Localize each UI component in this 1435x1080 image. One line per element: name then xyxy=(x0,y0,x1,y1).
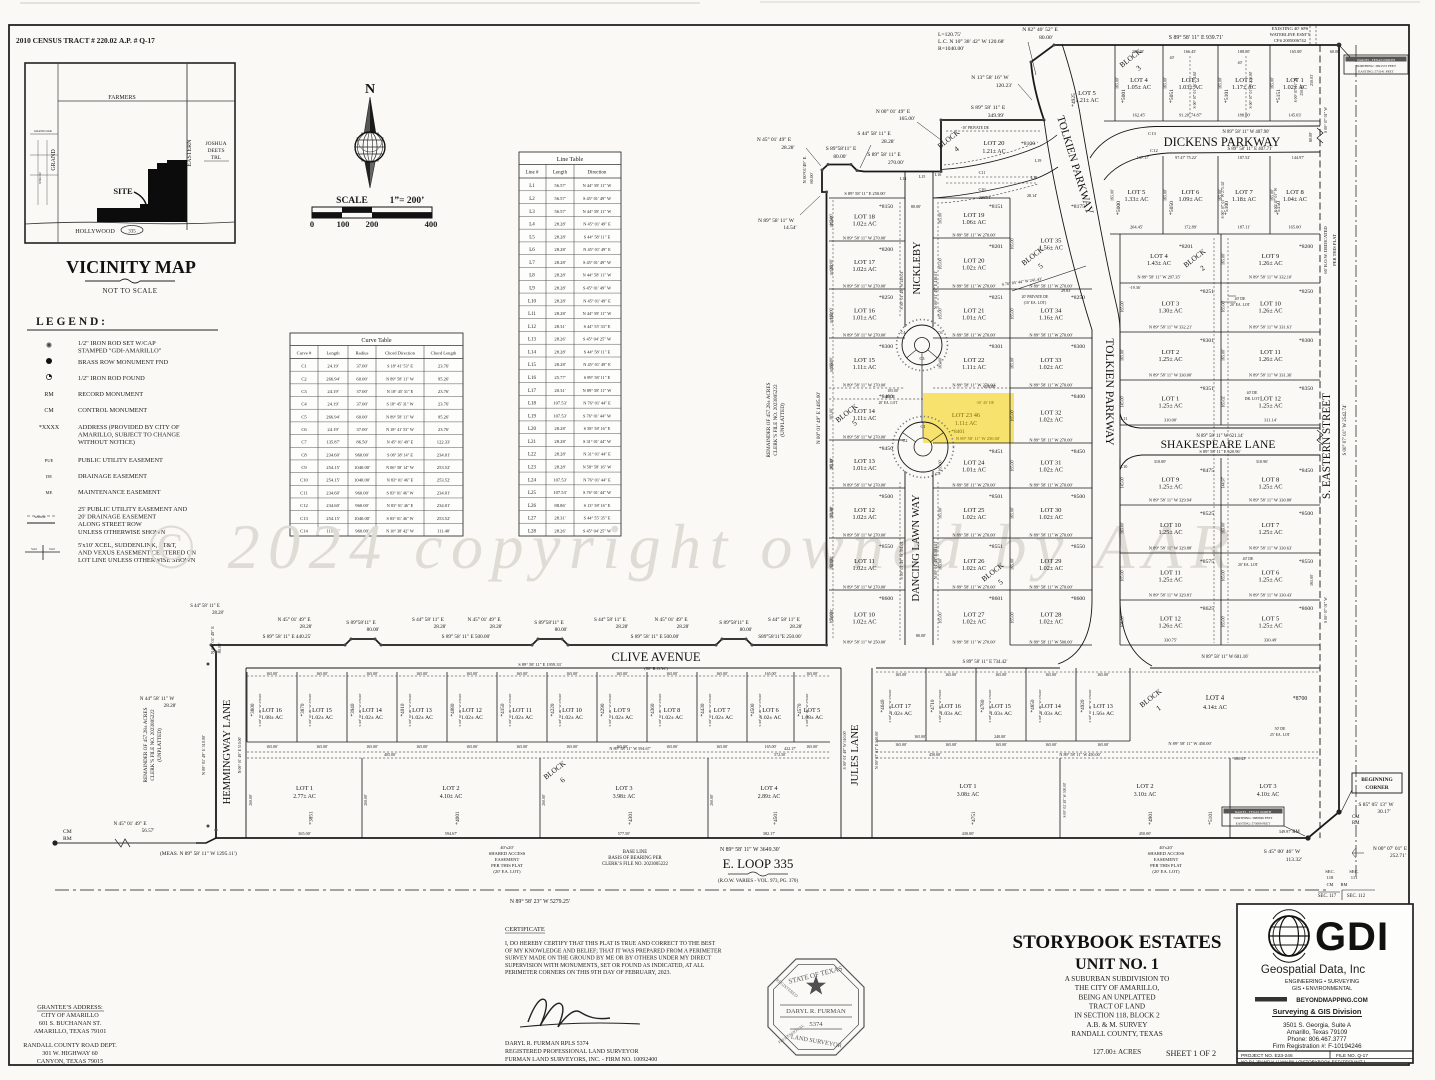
svg-text:NAD 83 - TEXAS NORTH: NAD 83 - TEXAS NORTH xyxy=(1357,58,1395,62)
svg-text:L3: L3 xyxy=(529,210,535,215)
svg-text:80.00′: 80.00′ xyxy=(1308,132,1313,142)
svg-text:L10: L10 xyxy=(1121,464,1128,469)
svg-text:LOT 26: LOT 26 xyxy=(964,558,986,565)
svg-text:Geospatial Data, Inc: Geospatial Data, Inc xyxy=(1261,964,1365,976)
svg-text:28.28': 28.28' xyxy=(554,234,565,239)
svg-text:C1: C1 xyxy=(921,424,926,429)
svg-text:165.00′: 165.00′ xyxy=(1010,357,1015,369)
svg-text:S 00° 01′ 49″ W 270.00′: S 00° 01′ 49″ W 270.00′ xyxy=(758,693,762,726)
svg-text:*4150: *4150 xyxy=(500,703,506,716)
svg-text:*8451: *8451 xyxy=(989,449,1003,455)
svg-text:25.77': 25.77' xyxy=(554,375,565,380)
svg-text:LOT 4: LOT 4 xyxy=(1206,695,1225,702)
svg-text:165.00′: 165.00′ xyxy=(765,744,777,749)
svg-text:28.26': 28.26' xyxy=(554,337,565,342)
svg-text:TRL: TRL xyxy=(211,155,222,161)
svg-text:1.25± AC: 1.25± AC xyxy=(1158,529,1182,536)
svg-text:LOT 9: LOT 9 xyxy=(1162,477,1180,484)
svg-text:165.00′: 165.00′ xyxy=(1221,615,1226,627)
svg-text:LOT 12: LOT 12 xyxy=(854,507,875,514)
svg-text:L19: L19 xyxy=(1035,158,1042,163)
svg-text:N 89° 58′ 11″ W 270.00′: N 89° 58′ 11″ W 270.00′ xyxy=(952,585,995,590)
svg-text:WITHOUT NOTICE): WITHOUT NOTICE) xyxy=(78,439,135,446)
svg-text:40′ DE: 40′ DE xyxy=(1247,391,1258,395)
svg-text:N 82° 40′ 52″ E: N 82° 40′ 52″ E xyxy=(1022,26,1058,33)
svg-text:60.00′: 60.00′ xyxy=(1330,49,1340,54)
svg-text:EASEMENT: EASEMENT xyxy=(1154,857,1179,862)
svg-text:28.28′: 28.28′ xyxy=(790,624,803,630)
svg-text:LOT 5: LOT 5 xyxy=(1078,90,1096,97)
svg-text:CERTIFICATE: CERTIFICATE xyxy=(505,926,545,933)
svg-text:*5000: *5000 xyxy=(1116,201,1122,215)
svg-text:382.17′: 382.17′ xyxy=(763,831,776,836)
svg-text:165.00′: 165.00′ xyxy=(830,556,834,567)
svg-text:WATERLINE ESM’T: WATERLINE ESM’T xyxy=(1270,32,1311,37)
svg-text:1.05± AC: 1.05± AC xyxy=(1127,84,1151,91)
svg-text:OF MY KNOWLEDGE AND BELIEF; TH: OF MY KNOWLEDGE AND BELIEF; THAT IT WAS … xyxy=(505,948,722,954)
svg-text:NAD 83 - TEXAS NORTH: NAD 83 - TEXAS NORTH xyxy=(1235,810,1272,814)
svg-text:165.00′: 165.00′ xyxy=(516,744,528,749)
svg-text:N 89° 58′ 11″ W 270.00′: N 89° 58′ 11″ W 270.00′ xyxy=(1029,438,1072,443)
svg-text:*8150: *8150 xyxy=(879,204,893,210)
svg-text:RM: RM xyxy=(1341,882,1348,887)
svg-text:N 31° 01' 44" E: N 31° 01' 44" E xyxy=(583,452,611,457)
svg-text:960.00': 960.00' xyxy=(355,503,369,508)
svg-text:BRASS ROW MONUMENT FND: BRASS ROW MONUMENT FND xyxy=(78,359,169,366)
svg-text:Chord Length: Chord Length xyxy=(431,351,457,356)
svg-text:S. EASTERN STREET: S. EASTERN STREET xyxy=(1321,393,1333,499)
svg-text:N 45° 01′ 49″ E: N 45° 01′ 49″ E xyxy=(113,820,146,827)
svg-text:L20: L20 xyxy=(528,427,537,432)
svg-text:N 00° 01′ 49″ E 416.01′: N 00° 01′ 49″ E 416.01′ xyxy=(933,271,938,309)
svg-text:60′ R.O.W. DEDICATED: 60′ R.O.W. DEDICATED xyxy=(1323,226,1328,274)
svg-text:RANDALL COUNTY ROAD DEPT.: RANDALL COUNTY ROAD DEPT. xyxy=(23,1042,117,1049)
svg-text:N 76° 01' 44" E: N 76° 01' 44" E xyxy=(583,401,611,406)
svg-text:28.28': 28.28' xyxy=(554,273,565,278)
svg-text:4.10± AC: 4.10± AC xyxy=(440,794,463,800)
svg-text:Line Table: Line Table xyxy=(557,156,584,163)
svg-text:*5051: *5051 xyxy=(1169,89,1175,103)
svg-text:N 89° 58′ 11″ W 270.00′: N 89° 58′ 11″ W 270.00′ xyxy=(843,383,886,388)
svg-text:165.00′: 165.00′ xyxy=(938,611,943,623)
svg-text:Length: Length xyxy=(326,351,340,356)
svg-text:28.28': 28.28' xyxy=(554,452,565,457)
svg-text:N 45° 01' 49" E: N 45° 01' 49" E xyxy=(387,440,414,445)
svg-text:LOT 10: LOT 10 xyxy=(1160,522,1182,529)
svg-text:L25: L25 xyxy=(528,491,537,496)
svg-text:40′ DE: 40′ DE xyxy=(1235,297,1246,301)
svg-text:*8550: *8550 xyxy=(879,544,893,550)
svg-text:SEC.: SEC. xyxy=(1349,869,1359,874)
svg-text:253.52': 253.52' xyxy=(437,478,451,483)
svg-text:28.28': 28.28' xyxy=(554,247,565,252)
svg-text:LOT 6: LOT 6 xyxy=(1182,189,1200,196)
svg-text:1.08± AC: 1.08± AC xyxy=(261,715,283,721)
svg-text:28.28': 28.28' xyxy=(554,285,565,290)
svg-text:ALONG STREET ROW: ALONG STREET ROW xyxy=(78,521,143,528)
svg-text:N 89° 58′ 11″ W 329.88′: N 89° 58′ 11″ W 329.88′ xyxy=(1149,546,1192,551)
svg-text:LOT 7: LOT 7 xyxy=(1235,189,1253,196)
svg-text:165.00′: 165.00′ xyxy=(914,734,926,739)
svg-text:S 89° 58′ 11″ E 500.00′: S 89° 58′ 11″ E 500.00′ xyxy=(442,633,491,640)
svg-text:LOT 31: LOT 31 xyxy=(1041,460,1062,467)
svg-text:80.00′: 80.00′ xyxy=(555,627,568,633)
svg-text:234.60': 234.60' xyxy=(326,503,340,508)
svg-text:NICKLEBY: NICKLEBY xyxy=(912,241,923,294)
svg-text:ENGINEERING • SURVEYING: ENGINEERING • SURVEYING xyxy=(1285,979,1359,985)
svg-text:430.00′: 430.00′ xyxy=(962,831,975,836)
svg-text:N 00° 01′ 49″ E 510.00′: N 00° 01′ 49″ E 510.00′ xyxy=(201,735,206,775)
svg-text:S 00° 01′ 49″ W 270.00′: S 00° 01′ 49″ W 270.00′ xyxy=(1088,689,1092,722)
svg-text:LOT 13: LOT 13 xyxy=(854,458,876,465)
svg-text:165.00′: 165.00′ xyxy=(366,671,378,676)
svg-text:C10: C10 xyxy=(979,187,986,192)
svg-text:DRAINAGE EASEMENT: DRAINAGE EASEMENT xyxy=(78,473,147,480)
svg-text:1.26± AC: 1.26± AC xyxy=(1158,623,1182,630)
svg-text:BEGINNING: BEGINNING xyxy=(1361,777,1393,783)
svg-text:37.00': 37.00' xyxy=(356,427,367,432)
svg-text:1.02± AC: 1.02± AC xyxy=(852,565,876,572)
svg-text:100: 100 xyxy=(337,219,350,229)
svg-text:188.00′: 188.00′ xyxy=(1237,113,1250,118)
svg-text:*8250: *8250 xyxy=(1071,295,1085,301)
svg-text:*4901: *4901 xyxy=(1148,811,1154,825)
svg-text:111: 111 xyxy=(1351,875,1358,880)
svg-text:(UNPLATTED): (UNPLATTED) xyxy=(156,728,163,762)
svg-text:28.28': 28.28' xyxy=(554,349,565,354)
svg-text:*XXXX: *XXXX xyxy=(39,425,60,431)
svg-text:1.25± AC: 1.25± AC xyxy=(1158,356,1182,363)
svg-text:(20′ EA. LOT): (20′ EA. LOT) xyxy=(1152,869,1180,874)
svg-text:C1: C1 xyxy=(301,364,307,369)
svg-text:S 13° 58' 16" E: S 13° 58' 16" E xyxy=(584,503,611,508)
svg-text:L26: L26 xyxy=(528,504,537,509)
svg-text:28.28': 28.28' xyxy=(554,222,565,227)
svg-text:N 89° 58′ 11″ W 297.35′: N 89° 58′ 11″ W 297.35′ xyxy=(1137,275,1180,280)
svg-text:AMARILLO, SUBJECT TO CHANGE: AMARILLO, SUBJECT TO CHANGE xyxy=(78,432,180,439)
svg-text:1.09± AC: 1.09± AC xyxy=(1178,196,1202,203)
svg-text:165.00′: 165.00′ xyxy=(666,744,678,749)
svg-text:1.02± AC: 1.02± AC xyxy=(852,221,876,228)
svg-text:N 00° 07′ 01″ E 510.00′: N 00° 07′ 01″ E 510.00′ xyxy=(874,731,879,769)
svg-text:4.14± AC: 4.14± AC xyxy=(1203,704,1227,711)
svg-text:37.00': 37.00' xyxy=(356,389,367,394)
svg-text:CM: CM xyxy=(1327,882,1334,887)
svg-text:Firm Registration #: F-1019424: Firm Registration #: F-10194246 xyxy=(1272,1043,1362,1050)
svg-text:wwww: wwww xyxy=(34,514,46,519)
svg-text:N 45° 01' 49" E: N 45° 01' 49" E xyxy=(583,362,611,367)
svg-text:250.03′: 250.03′ xyxy=(1309,74,1314,86)
svg-text:S 00° 07′ 01″ W 270.00′: S 00° 07′ 01″ W 270.00′ xyxy=(1249,71,1253,108)
svg-text:N 89° 58′ 11″ W 270.00′: N 89° 58′ 11″ W 270.00′ xyxy=(1029,533,1072,538)
svg-text:1.02± AC: 1.02± AC xyxy=(1039,467,1063,474)
svg-text:TRACT OF LAND: TRACT OF LAND xyxy=(1089,1002,1145,1010)
svg-text:HEMMINGWAY LANE: HEMMINGWAY LANE xyxy=(222,700,233,805)
svg-text:LOT 4: LOT 4 xyxy=(1130,77,1148,84)
svg-text:165.00′: 165.00′ xyxy=(516,671,528,676)
svg-text:28.28': 28.28' xyxy=(554,298,565,303)
svg-text:*5101: *5101 xyxy=(1224,89,1230,103)
svg-text:N 18° 45' 31" E: N 18° 45' 31" E xyxy=(387,389,414,394)
svg-text:1.06± AC: 1.06± AC xyxy=(962,219,986,226)
svg-text:20′ PRIVATE DE: 20′ PRIVATE DE xyxy=(1022,295,1049,299)
svg-text:*8575: *8575 xyxy=(1200,559,1214,565)
svg-text:S 06° 38' 14" E: S 06° 38' 14" E xyxy=(387,452,413,457)
svg-text:165.00′: 165.00′ xyxy=(566,671,578,676)
svg-text:80.00′: 80.00′ xyxy=(740,627,753,633)
svg-text:91.20′ 74.87′: 91.20′ 74.87′ xyxy=(1179,113,1202,118)
svg-text:165.00′: 165.00′ xyxy=(316,671,328,676)
svg-text:28.28′: 28.28′ xyxy=(434,624,447,630)
svg-text:N 89° 58′ 11″ W 270.00′: N 89° 58′ 11″ W 270.00′ xyxy=(952,333,995,338)
svg-text:N 00° 01′ 49″ E 1485.00′: N 00° 01′ 49″ E 1485.00′ xyxy=(815,392,822,444)
svg-text:311.14′: 311.14′ xyxy=(1264,418,1277,423)
svg-text:LOT 8: LOT 8 xyxy=(1262,477,1280,484)
svg-text:S 00° 01′ 49″ W 270.00′: S 00° 01′ 49″ W 270.00′ xyxy=(988,689,992,722)
svg-text:Phone: 806.467.3777: Phone: 806.467.3777 xyxy=(1287,1036,1347,1043)
svg-text:40′x20′: 40′x20′ xyxy=(1159,845,1173,850)
svg-text:S 18° 45' 31" W: S 18° 45' 31" W xyxy=(386,402,413,407)
svg-text:*5001: *5001 xyxy=(1121,89,1127,103)
svg-text:(MEAS. N 89° 58′ 11″ W 1295.11: (MEAS. N 89° 58′ 11″ W 1295.11′) xyxy=(160,850,237,857)
svg-text:S 00° 01′ 49″ W 270.00′: S 00° 01′ 49″ W 270.00′ xyxy=(558,693,562,726)
svg-text:CORNER: CORNER xyxy=(1365,785,1388,791)
svg-text:1.02± AC: 1.02± AC xyxy=(511,715,533,721)
svg-text:S 89°58′11″ E: S 89°58′11″ E xyxy=(346,619,375,626)
svg-text:N 00° 01′ 49″ E: N 00° 01′ 49″ E xyxy=(210,626,215,654)
svg-text:RM: RM xyxy=(63,836,72,842)
svg-text:N 89° 58′ 11″ W 621.14′: N 89° 58′ 11″ W 621.14′ xyxy=(1196,434,1243,439)
svg-text:14.54′: 14.54′ xyxy=(783,225,796,231)
svg-text:LOT 4: LOT 4 xyxy=(1150,253,1168,260)
svg-text:S 44° 58′ 11″ E: S 44° 58′ 11″ E xyxy=(768,616,800,623)
svg-text:234.01': 234.01' xyxy=(437,452,451,457)
svg-text:PROJECT NO. E23-246: PROJECT NO. E23-246 xyxy=(1241,1053,1293,1059)
svg-text:80.00′: 80.00′ xyxy=(1039,35,1053,41)
svg-text:120.23′: 120.23′ xyxy=(996,83,1013,89)
svg-text:LOT 33: LOT 33 xyxy=(1041,357,1063,364)
svg-text:*3940: *3940 xyxy=(350,703,356,716)
svg-text:80.00′: 80.00′ xyxy=(833,154,846,160)
svg-text:C3: C3 xyxy=(301,389,307,394)
svg-text:165.00′: 165.00′ xyxy=(1163,189,1168,201)
svg-text:C11: C11 xyxy=(300,490,308,495)
svg-text:1040.00': 1040.00' xyxy=(354,465,370,470)
svg-text:2.89± AC: 2.89± AC xyxy=(758,794,781,800)
svg-text:LOT 12: LOT 12 xyxy=(1260,396,1281,403)
svg-text:S 00° 07′ 01″ W: S 00° 07′ 01″ W xyxy=(1323,107,1328,133)
svg-text:N 89° 58′ 11″ W 270.00′: N 89° 58′ 11″ W 270.00′ xyxy=(1029,383,1072,388)
svg-text:252.71′: 252.71′ xyxy=(1390,853,1406,859)
svg-text:1.02± AC: 1.02± AC xyxy=(461,715,483,721)
svg-text:L6: L6 xyxy=(529,248,535,253)
svg-text:N 45° 01' 49" E: N 45° 01' 49" E xyxy=(583,222,611,227)
svg-text:RANDALL COUNTY, TEXAS: RANDALL COUNTY, TEXAS xyxy=(1071,1030,1163,1038)
svg-text:Line #: Line # xyxy=(526,171,539,176)
svg-text:*4925: *4925 xyxy=(1071,93,1077,107)
svg-text:S 89° 58' 11" E: S 89° 58' 11" E xyxy=(584,375,611,380)
svg-text:N 00°01′49″ E: N 00°01′49″ E xyxy=(802,156,807,183)
svg-text:S 45° 04' 25" W: S 45° 04' 25" W xyxy=(583,337,612,342)
svg-text:N 06° 58' 14" W: N 06° 58' 14" W xyxy=(386,465,414,470)
svg-text:165.00′: 165.00′ xyxy=(899,116,915,122)
svg-text:20' DRAINAGE EASEMENT: 20' DRAINAGE EASEMENT xyxy=(78,514,156,521)
svg-text:*8450: *8450 xyxy=(1071,449,1085,455)
svg-text:1: 1 xyxy=(1154,703,1163,713)
svg-text:N 44° 58′ 11″ W: N 44° 58′ 11″ W xyxy=(140,695,175,702)
svg-text:*8475: *8475 xyxy=(1200,468,1214,474)
svg-text:HOLLYWOOD: HOLLYWOOD xyxy=(75,228,115,235)
svg-text:165.00′: 165.00′ xyxy=(616,671,628,676)
svg-text:BEING AN UNPLATTED: BEING AN UNPLATTED xyxy=(1078,993,1155,1001)
svg-text:SUPERVISION WITH MONUMENTS, SE: SUPERVISION WITH MONUMENTS, SET OR FOUND… xyxy=(505,963,705,969)
svg-text:N 89° 58′ 11″ W 329.81′: N 89° 58′ 11″ W 329.81′ xyxy=(1149,593,1192,598)
svg-text:-19.36′: -19.36′ xyxy=(1129,285,1140,290)
svg-text:LOT 2: LOT 2 xyxy=(1162,349,1180,356)
svg-text:1.25± AC: 1.25± AC xyxy=(1258,484,1282,491)
svg-text:80.00′: 80.00′ xyxy=(217,643,222,654)
svg-text:N 44° 58' 11" W: N 44° 58' 11" W xyxy=(583,183,613,188)
svg-text:C3: C3 xyxy=(920,356,925,361)
svg-text:L1: L1 xyxy=(529,184,535,189)
svg-text:EASTERN: EASTERN xyxy=(187,139,193,167)
svg-text:REMAINDER OF 457.28± ACRES: REMAINDER OF 457.28± ACRES xyxy=(143,707,149,782)
svg-text:*3851: *3851 xyxy=(309,811,315,825)
svg-text:*8301: *8301 xyxy=(989,344,1003,350)
svg-text:S 00° 01′ 49″ W 270.00′: S 00° 01′ 49″ W 270.00′ xyxy=(658,693,662,726)
svg-text:S 58° 58' 16" E: S 58° 58' 16" E xyxy=(584,426,611,431)
svg-text:N 45° 01' 49" E: N 45° 01' 49" E xyxy=(583,298,611,303)
svg-text:EASTING: 573009 FEET: EASTING: 573009 FEET xyxy=(1236,822,1270,826)
svg-text:165.00′: 165.00′ xyxy=(938,307,943,319)
svg-text:N 89° 58′ 11″ W 332.10′: N 89° 58′ 11″ W 332.10′ xyxy=(1249,275,1292,280)
svg-text:LOT 4: LOT 4 xyxy=(760,785,778,792)
svg-text:28.28': 28.28' xyxy=(554,311,565,316)
svg-text:LOT 30: LOT 30 xyxy=(1041,507,1063,514)
svg-text:80.00′: 80.00′ xyxy=(916,633,926,638)
svg-text:144.97′: 144.97′ xyxy=(1221,476,1226,488)
svg-text:EASTING: 573141 FEET: EASTING: 573141 FEET xyxy=(1358,70,1394,74)
svg-text:S 00° 01′ 49″ W 270.00′: S 00° 01′ 49″ W 270.00′ xyxy=(308,693,312,726)
svg-text:165.00′: 165.00′ xyxy=(1010,558,1015,570)
svg-text:234.01': 234.01' xyxy=(437,490,451,495)
svg-text:N 89° 58′ 11″ W 270.00′: N 89° 58′ 11″ W 270.00′ xyxy=(952,483,995,488)
svg-text:BLOCK: BLOCK xyxy=(1138,686,1164,709)
svg-text:LOT 12: LOT 12 xyxy=(1160,616,1181,623)
svg-text:24.19': 24.19' xyxy=(327,389,338,394)
svg-text:3: 3 xyxy=(1134,63,1143,73)
svg-text:165.00′: 165.00′ xyxy=(938,212,943,224)
svg-text:330.75′: 330.75′ xyxy=(1164,638,1177,643)
svg-text:N 00° 01′ 49″ E 510.00′: N 00° 01′ 49″ E 510.00′ xyxy=(238,737,242,774)
svg-text:LOT 17: LOT 17 xyxy=(854,259,876,266)
svg-text:40′: 40′ xyxy=(1170,56,1175,60)
svg-text:254.15': 254.15' xyxy=(326,478,340,483)
svg-text:DR. LOT: DR. LOT xyxy=(1245,397,1260,401)
svg-text:L15: L15 xyxy=(528,363,537,368)
svg-text:1.03± AC: 1.03± AC xyxy=(1040,711,1062,717)
svg-text:2: 2 xyxy=(1198,263,1207,273)
svg-text:L E G E N D :: L E G E N D : xyxy=(36,316,105,328)
svg-text:165.00′: 165.00′ xyxy=(1110,189,1115,201)
svg-text:165.00′: 165.00′ xyxy=(830,458,834,469)
svg-text:960.00': 960.00' xyxy=(355,452,369,457)
svg-text:*8450: *8450 xyxy=(1299,468,1313,474)
svg-text:N 45° 01' 49" E: N 45° 01' 49" E xyxy=(583,247,611,252)
svg-text:*4640: *4640 xyxy=(880,699,886,712)
svg-text:S 00° 01′ 49″ W 270.00′: S 00° 01′ 49″ W 270.00′ xyxy=(805,693,809,726)
svg-text:187.11′: 187.11′ xyxy=(1238,225,1251,230)
svg-text:S 89°58′11″ E: S 89°58′11″ E xyxy=(534,619,563,626)
svg-text:AMARILLO, TEXAS 79101: AMARILLO, TEXAS 79101 xyxy=(34,1028,107,1035)
svg-text:601 S. BUCHANAN ST.: 601 S. BUCHANAN ST. xyxy=(39,1020,102,1027)
svg-text:Length: Length xyxy=(553,171,568,176)
svg-text:1.03± AC: 1.03± AC xyxy=(940,711,962,717)
svg-text:310.00′: 310.00′ xyxy=(1164,418,1177,423)
svg-text:Chord Direction: Chord Direction xyxy=(385,351,416,356)
svg-text:165.00′: 165.00′ xyxy=(995,672,1007,677)
svg-text:*8251: *8251 xyxy=(1200,289,1214,295)
svg-text:S 89° 58′ 11″ E: S 89° 58′ 11″ E xyxy=(971,104,1006,111)
svg-text:165.00′: 165.00′ xyxy=(466,744,478,749)
svg-text:254.15': 254.15' xyxy=(326,465,340,470)
svg-text:*4010: *4010 xyxy=(400,703,406,716)
svg-text:3.98± AC: 3.98± AC xyxy=(613,794,636,800)
svg-text:165.00′: 165.00′ xyxy=(1218,77,1223,89)
svg-text:162.45′: 162.45′ xyxy=(1132,113,1145,118)
svg-text:GDI: GDI xyxy=(1315,915,1389,959)
svg-text:BEYONDMAPPING.COM: BEYONDMAPPING.COM xyxy=(1296,997,1368,1004)
svg-text:137.17′: 137.17′ xyxy=(1137,155,1150,160)
svg-text:165.00′: 165.00′ xyxy=(829,408,834,420)
svg-text:L7: L7 xyxy=(529,261,535,266)
svg-text:260.00′: 260.00′ xyxy=(542,794,546,805)
svg-text:S 89° 58′ 11″ E 440.25′: S 89° 58′ 11″ E 440.25′ xyxy=(263,633,312,640)
svg-text:S 00° 01′ 49″ W 510.00′: S 00° 01′ 49″ W 510.00′ xyxy=(842,730,847,769)
svg-text:C6: C6 xyxy=(301,427,307,432)
svg-text:GIS • ENVIRONMENTAL: GIS • ENVIRONMENTAL xyxy=(1292,986,1352,992)
svg-text:Amarillo, Texas 79109: Amarillo, Texas 79109 xyxy=(1287,1029,1348,1036)
svg-text:*8250: *8250 xyxy=(879,295,893,301)
svg-text:234.60': 234.60' xyxy=(326,452,340,457)
svg-text:*5050: *5050 xyxy=(1169,201,1175,215)
svg-text:165.00′: 165.00′ xyxy=(1010,611,1015,623)
svg-text:FARMERS: FARMERS xyxy=(108,95,136,101)
svg-text:CF# 2005006742: CF# 2005006742 xyxy=(1274,38,1307,43)
svg-text:C10: C10 xyxy=(300,478,308,483)
svg-text:107.53': 107.53' xyxy=(553,490,567,495)
svg-text:253.52': 253.52' xyxy=(437,465,451,470)
svg-text:165.00′: 165.00′ xyxy=(945,672,957,677)
svg-text:1/2" IRON ROD FOUND: 1/2" IRON ROD FOUND xyxy=(78,375,145,382)
svg-text:365.00′: 365.00′ xyxy=(298,831,311,836)
svg-text:N 44° 58' 11" W: N 44° 58' 11" W xyxy=(583,311,613,316)
svg-text:RECORD MONUMENT: RECORD MONUMENT xyxy=(78,391,143,398)
svg-text:(20′ EA. LOT): (20′ EA. LOT) xyxy=(493,869,521,874)
svg-text:6: 6 xyxy=(558,775,567,785)
svg-text:25′ EA. LOT: 25′ EA. LOT xyxy=(1270,733,1291,737)
svg-text:S 89° 58′ 11″ E 500.00′: S 89° 58′ 11″ E 500.00′ xyxy=(631,633,680,640)
svg-text:N 89° 58′ 11″ W 330.63′: N 89° 58′ 11″ W 330.63′ xyxy=(1249,546,1292,551)
svg-text:SHEET 1 OF 2: SHEET 1 OF 2 xyxy=(1166,1049,1216,1058)
svg-text:LOT 3: LOT 3 xyxy=(1182,77,1200,84)
svg-text:LOT 25: LOT 25 xyxy=(964,507,986,514)
svg-text:5x10: 5x10 xyxy=(31,547,38,551)
svg-text:L11: L11 xyxy=(1121,416,1128,421)
svg-text:165.00′: 165.00′ xyxy=(416,744,428,749)
svg-text:PUE: PUE xyxy=(45,458,54,463)
svg-text:S 44° 58′ 11″ E: S 44° 58′ 11″ E xyxy=(857,130,891,137)
